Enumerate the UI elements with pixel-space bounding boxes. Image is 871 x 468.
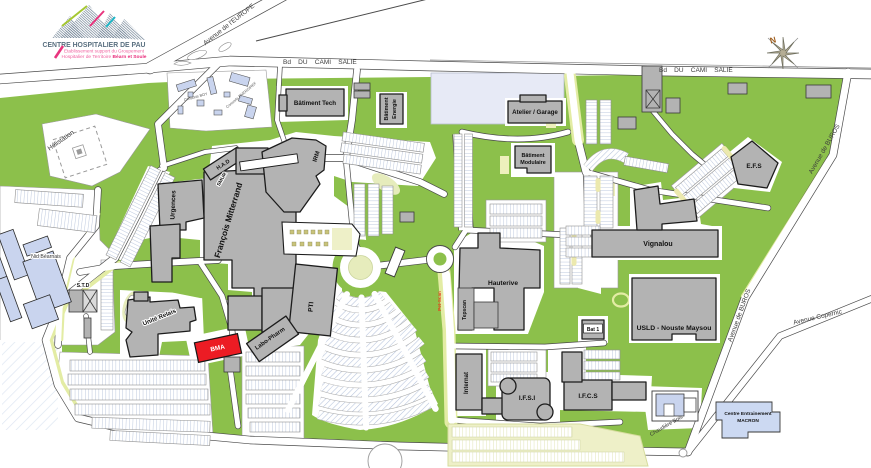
svg-text:Pet-Scan: Pet-Scan <box>437 291 442 311</box>
svg-text:Bat 1: Bat 1 <box>587 327 599 333</box>
svg-text:E.F.S: E.F.S <box>746 163 762 170</box>
svg-text:Centre Entrainement: Centre Entrainement <box>724 411 772 417</box>
svg-text:Bd DU CAMI SALIE: Bd DU CAMI SALIE <box>659 67 733 74</box>
svg-text:Bd DU CAMI SALIE: Bd DU CAMI SALIE <box>283 59 357 66</box>
svg-text:Bâtiment: Bâtiment <box>384 97 390 120</box>
svg-text:Hauterive: Hauterive <box>488 280 518 287</box>
svg-text:Energie: Energie <box>392 99 398 119</box>
svg-text:USLD - Nouste Maysou: USLD - Nouste Maysou <box>637 325 712 332</box>
svg-text:PTI: PTI <box>308 301 316 312</box>
svg-text:Bâtiment Tech: Bâtiment Tech <box>294 100 336 107</box>
svg-text:Bâtiment: Bâtiment <box>521 153 544 159</box>
svg-text:Vignalou: Vignalou <box>643 241 672 248</box>
svg-text:Nid Béarnais: Nid Béarnais <box>31 254 61 260</box>
svg-text:Urgences: Urgences <box>169 190 177 220</box>
svg-text:I.F.S.I: I.F.S.I <box>519 395 536 402</box>
svg-text:Modulaire: Modulaire <box>520 160 545 166</box>
svg-text:Etablissement support du Group: Etablissement support du Groupement <box>64 49 145 54</box>
svg-text:Tepscan: Tepscan <box>462 300 468 320</box>
svg-text:Atelier / Garage: Atelier / Garage <box>512 109 558 116</box>
svg-text:Hospitalier de Territoire Béar: Hospitalier de Territoire Béarn et Soule <box>62 54 148 59</box>
svg-text:MACRON: MACRON <box>737 418 759 424</box>
svg-text:I.F.C.S: I.F.C.S <box>578 393 598 400</box>
svg-text:Internat: Internat <box>464 372 470 394</box>
svg-text:S.T.D: S.T.D <box>77 283 90 289</box>
